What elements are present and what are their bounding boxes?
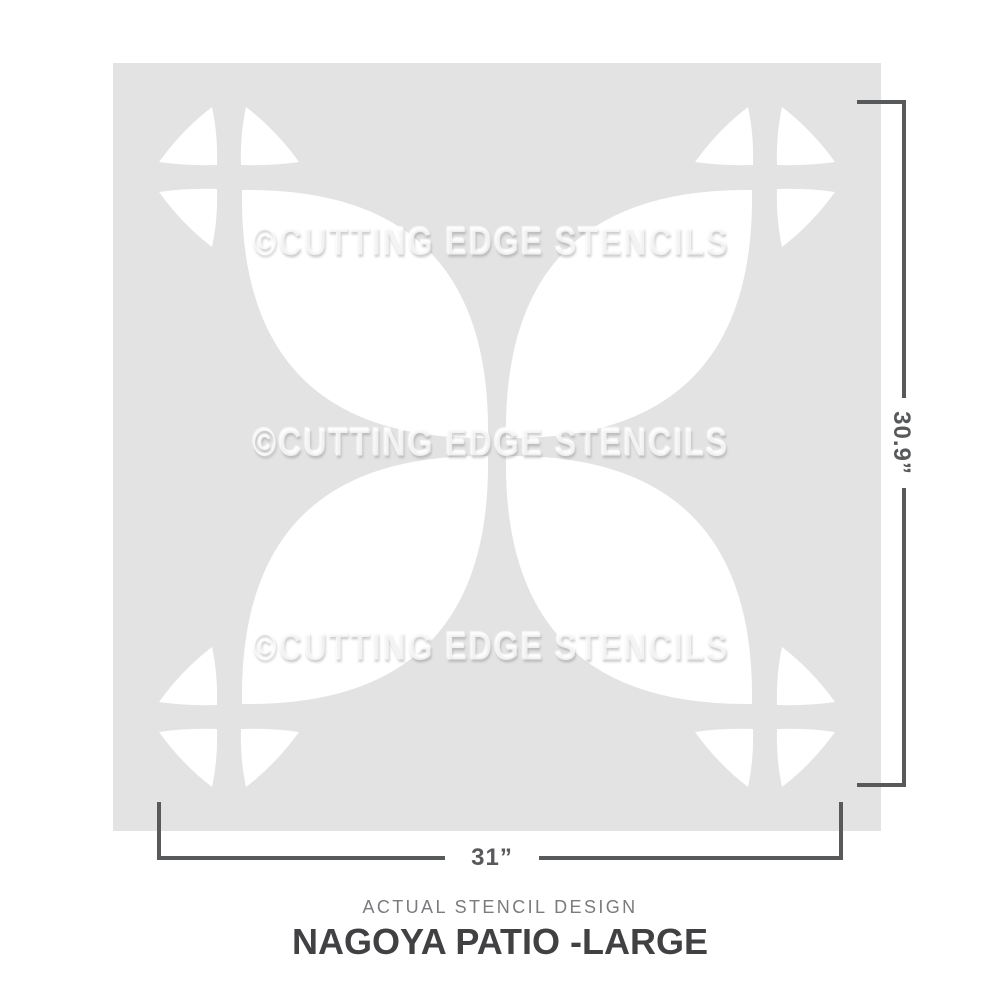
height-dimension-tick-top (857, 100, 906, 104)
product-image-canvas: ©CUTTING EDGE STENCILS ©CUTTING EDGE STE… (0, 0, 1000, 1000)
corner-triangle-cutout (695, 729, 753, 787)
stencil-sheet: ©CUTTING EDGE STENCILS ©CUTTING EDGE STE… (113, 63, 881, 831)
height-dimension-line-lower (902, 488, 906, 787)
stencil-title: NAGOYA PATIO -LARGE (0, 921, 1000, 963)
height-dimension-tick-bottom (857, 783, 906, 787)
corner-triangle-cutout (777, 107, 835, 165)
stencil-caption: ACTUAL STENCIL DESIGN (0, 897, 1000, 918)
corner-triangle-cutout (777, 729, 835, 787)
width-dimension-line-right (539, 856, 843, 860)
watermark-text: ©CUTTING EDGE STENCILS (141, 420, 841, 464)
width-dimension-line-left (157, 856, 445, 860)
height-dimension-label: 30.9” (887, 411, 915, 475)
width-dimension-tick-right (839, 802, 843, 860)
corner-triangle-cutout (159, 107, 217, 165)
watermark-text: ©CUTTING EDGE STENCILS (141, 219, 841, 263)
corner-triangle-cutout (159, 729, 217, 787)
corner-triangle-cutout (695, 107, 753, 165)
corner-triangle-cutout (241, 107, 299, 165)
corner-triangle-cutout (241, 729, 299, 787)
width-dimension-tick-left (157, 802, 161, 860)
width-dimension-label: 31” (471, 844, 513, 872)
watermark-text: ©CUTTING EDGE STENCILS (141, 624, 841, 668)
height-dimension-line-upper (902, 100, 906, 398)
